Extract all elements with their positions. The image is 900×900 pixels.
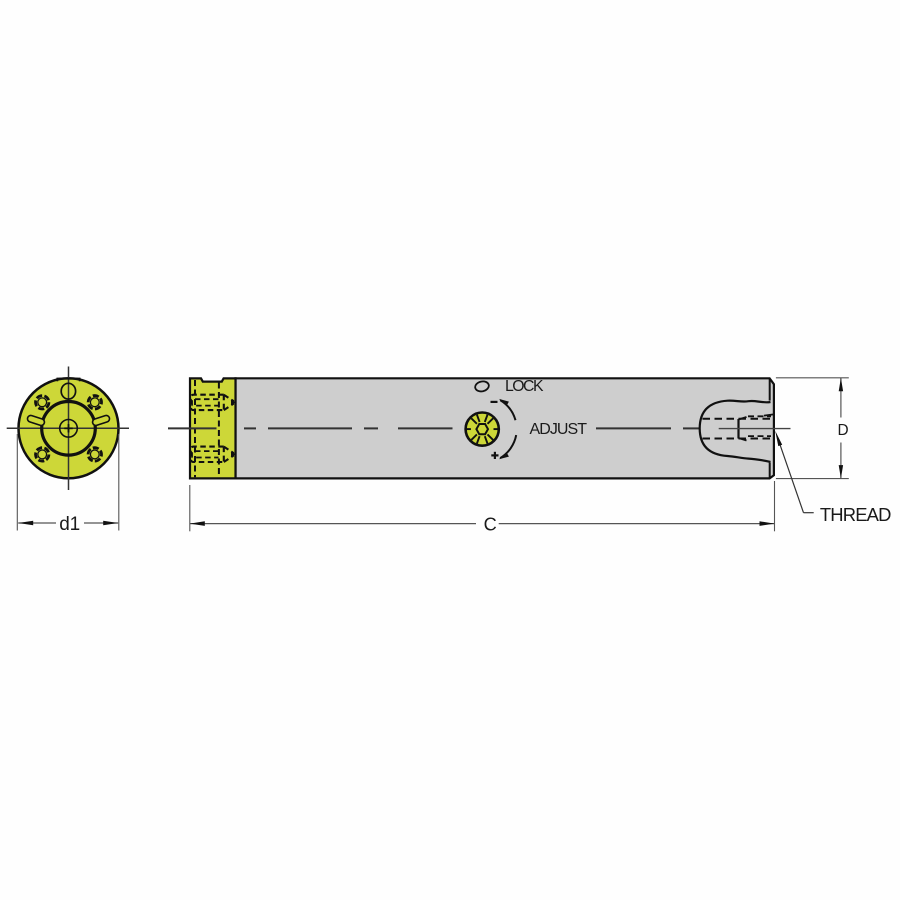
svg-text:D: D	[838, 422, 849, 439]
svg-text:LOCK: LOCK	[505, 378, 544, 395]
svg-text:d1: d1	[59, 514, 80, 535]
svg-text:THREAD: THREAD	[820, 504, 892, 525]
svg-text:ADJUST: ADJUST	[530, 421, 588, 438]
svg-text:C: C	[484, 515, 497, 535]
